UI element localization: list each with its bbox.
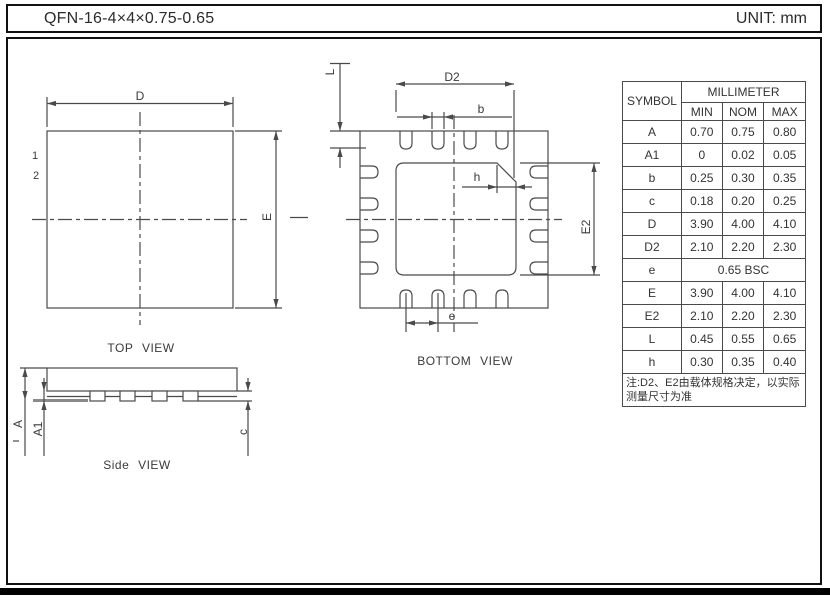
td-min: 3.90: [681, 213, 722, 236]
max-header-cell: MAX: [764, 103, 806, 121]
td-max: 0.40: [764, 351, 806, 374]
pin2-label: 2: [33, 170, 39, 182]
table-header-row-1: SYMBOL MILLIMETER: [623, 82, 806, 103]
td-symbol: A: [623, 121, 682, 144]
td-symbol: b: [623, 167, 682, 190]
td-min: 0.25: [681, 167, 722, 190]
dimension-table: SYMBOL MILLIMETER MIN NOM MAX A 0.70 0.7…: [622, 81, 806, 407]
td-symbol: h: [623, 351, 682, 374]
table-row: A 0.70 0.75 0.80: [623, 121, 806, 144]
dim-label-c: c: [236, 429, 250, 435]
side-view-caption: Side VIEW: [103, 458, 171, 472]
td-nom: 0.35: [722, 351, 764, 374]
table-row: c 0.18 0.20 0.25: [623, 190, 806, 213]
side-view-linework: [13, 368, 252, 456]
dim-h-lines: [462, 165, 532, 193]
td-nom: 0.55: [722, 328, 764, 351]
td-min: 0.18: [681, 190, 722, 213]
td-nom: 2.20: [722, 305, 764, 328]
dim-a1-lines: [41, 378, 46, 456]
side-view-body: [47, 368, 237, 391]
td-symbol: c: [623, 190, 682, 213]
td-symbol: L: [623, 328, 682, 351]
table-note: 注:D2、E2由载体规格决定，以实际 测量尺寸为准: [623, 374, 806, 407]
note-line-2: 测量尺寸为准: [626, 390, 802, 404]
table-row: b 0.25 0.30 0.35: [623, 167, 806, 190]
td-symbol: D2: [623, 236, 682, 259]
pin1-label: 1: [32, 150, 38, 162]
nom-header-cell: NOM: [722, 103, 764, 121]
dim-a-lines: [22, 368, 27, 456]
dim-label-a1: A1: [31, 422, 45, 437]
millimeter-header-cell: MILLIMETER: [681, 82, 805, 103]
datasheet-page: QFN-16-4×4×0.75-0.65 UNIT: mm: [0, 0, 830, 602]
td-max: 0.80: [764, 121, 806, 144]
table-row: L 0.45 0.55 0.65: [623, 328, 806, 351]
td-symbol: E: [623, 282, 682, 305]
td-max: 0.05: [764, 144, 806, 167]
td-min: 0: [681, 144, 722, 167]
footer-bar: [0, 588, 830, 595]
td-symbol: e: [623, 259, 682, 282]
td-max: 2.30: [764, 305, 806, 328]
td-max: 4.10: [764, 213, 806, 236]
dim-e-pitch-lines: [406, 293, 478, 332]
dim-label-e2: E2: [579, 220, 593, 235]
dim-label-e-pitch: e: [449, 309, 456, 323]
td-min: 0.30: [681, 351, 722, 374]
table-row: h 0.30 0.35 0.40: [623, 351, 806, 374]
td-min: 0.70: [681, 121, 722, 144]
table-row: A1 0 0.02 0.05: [623, 144, 806, 167]
table-row: D 3.90 4.00 4.10: [623, 213, 806, 236]
td-max: 4.10: [764, 282, 806, 305]
dim-label-d: D: [136, 89, 145, 103]
td-nom: 4.00: [722, 213, 764, 236]
td-min: 3.90: [681, 282, 722, 305]
table-row: E 3.90 4.00 4.10: [623, 282, 806, 305]
td-symbol: E2: [623, 305, 682, 328]
top-view-linework: [32, 97, 308, 325]
td-max: 0.25: [764, 190, 806, 213]
dim-label-b: b: [478, 102, 485, 116]
arrowheads-c: [245, 382, 250, 410]
bottom-view-caption: BOTTOM VIEW: [417, 354, 513, 368]
bottom-view-linework: [330, 64, 600, 333]
table-row: E2 2.10 2.20 2.30: [623, 305, 806, 328]
td-min: 0.45: [681, 328, 722, 351]
dim-label-e: E: [260, 213, 274, 221]
td-span-value: 0.65 BSC: [681, 259, 805, 282]
top-view-caption: TOP VIEW: [107, 341, 174, 355]
min-header-cell: MIN: [681, 103, 722, 121]
dim-label-l: L: [323, 69, 337, 76]
td-nom: 0.75: [722, 121, 764, 144]
table-note-row: 注:D2、E2由载体规格决定，以实际 测量尺寸为准: [623, 374, 806, 407]
dim-c-lines: [245, 378, 250, 456]
td-max: 2.30: [764, 236, 806, 259]
td-nom: 0.30: [722, 167, 764, 190]
dim-label-d2: D2: [444, 70, 459, 84]
dim-label-h: h: [474, 170, 481, 184]
td-nom: 4.00: [722, 282, 764, 305]
td-nom: 0.20: [722, 190, 764, 213]
td-max: 0.65: [764, 328, 806, 351]
td-symbol: D: [623, 213, 682, 236]
note-line-1: 注:D2、E2由载体规格决定，以实际: [626, 376, 802, 390]
arrowheads-l: [337, 122, 342, 157]
td-nom: 0.02: [722, 144, 764, 167]
td-min: 2.10: [681, 305, 722, 328]
td-min: 2.10: [681, 236, 722, 259]
td-symbol: A1: [623, 144, 682, 167]
td-nom: 2.20: [722, 236, 764, 259]
td-max: 0.35: [764, 167, 806, 190]
table-row: D2 2.10 2.20 2.30: [623, 236, 806, 259]
symbol-header-cell: SYMBOL: [623, 82, 682, 121]
dim-l-lines: [330, 64, 366, 169]
dim-label-a: A: [11, 420, 25, 428]
table-row: e 0.65 BSC: [623, 259, 806, 282]
